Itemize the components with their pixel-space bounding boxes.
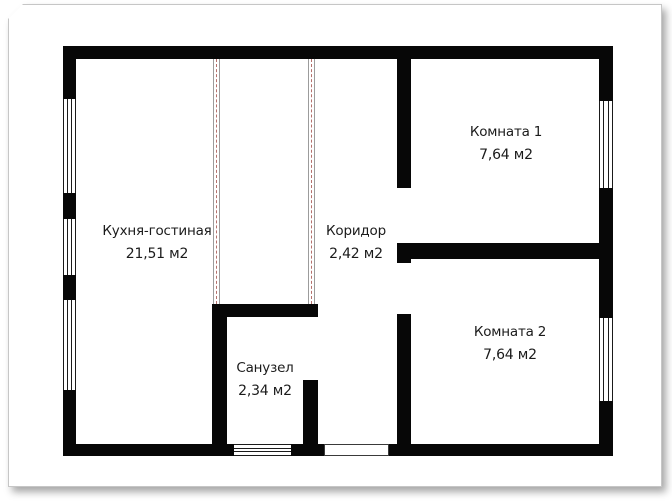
entrance-opening [324, 444, 389, 456]
room-area: 2,42 м2 [306, 243, 406, 266]
room-name: Кухня-гостиная [77, 220, 237, 243]
window-room2 [599, 318, 613, 401]
label-bathroom: Санузел 2,34 м2 [215, 357, 315, 403]
room-name: Санузел [215, 357, 315, 380]
window-room1 [599, 101, 613, 188]
window-left-3 [63, 300, 76, 390]
room-area: 2,34 м2 [215, 380, 315, 403]
wall-corridor-rooms-lower [397, 314, 411, 444]
room-name: Комната 1 [426, 121, 586, 144]
partition-kitchen-1 [213, 59, 220, 304]
window-left-1 [63, 99, 76, 193]
label-room2: Комната 2 7,64 м2 [430, 321, 590, 367]
room-area: 21,51 м2 [77, 243, 237, 266]
partition-kitchen-2 [308, 59, 315, 304]
label-room1: Комната 1 7,64 м2 [426, 121, 586, 167]
window-left-2 [63, 219, 76, 275]
room-area: 7,64 м2 [426, 144, 586, 167]
plan-page: Кухня-гостиная 21,51 м2 Коридор 2,42 м2 … [8, 4, 662, 487]
floor-plan-image: Кухня-гостиная 21,51 м2 Коридор 2,42 м2 … [0, 0, 672, 502]
wall-room1-room2 [397, 243, 613, 259]
room-name: Коридор [306, 220, 406, 243]
wall-corridor-rooms-upper [397, 59, 411, 188]
page-shadow: Кухня-гостиная 21,51 м2 Коридор 2,42 м2 … [0, 0, 672, 502]
window-bathroom [234, 444, 291, 456]
bathroom-wall-top [212, 304, 318, 317]
outer-wall-top [63, 46, 613, 59]
label-corridor: Коридор 2,42 м2 [306, 220, 406, 266]
label-kitchen-living: Кухня-гостиная 21,51 м2 [77, 220, 237, 266]
room-area: 7,64 м2 [430, 344, 590, 367]
room-name: Комната 2 [430, 321, 590, 344]
